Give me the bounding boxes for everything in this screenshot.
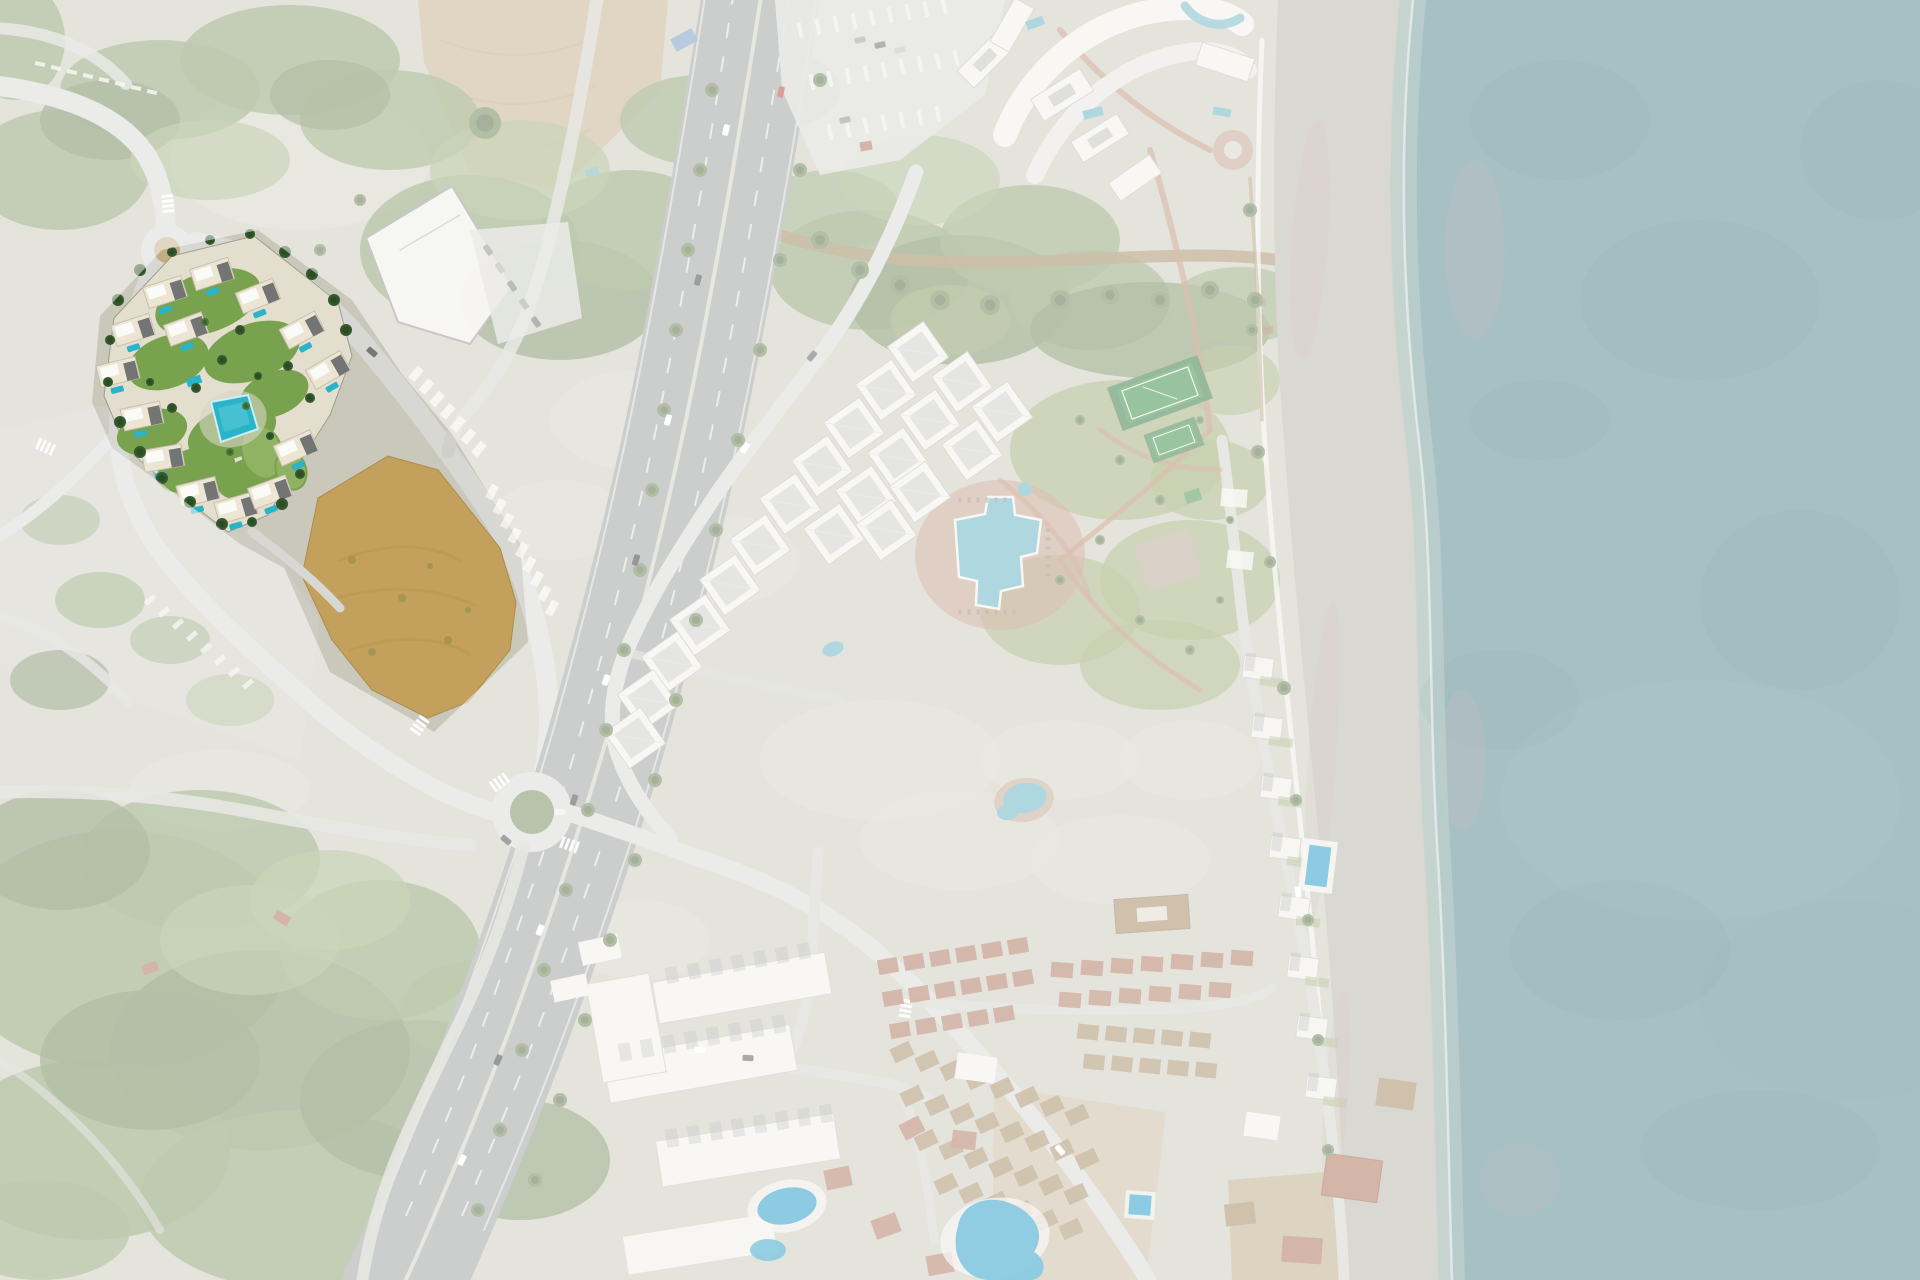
highlight-fade-overlay bbox=[0, 0, 1920, 1280]
aerial-development-map bbox=[0, 0, 1920, 1280]
map-canvas bbox=[0, 0, 1920, 1280]
